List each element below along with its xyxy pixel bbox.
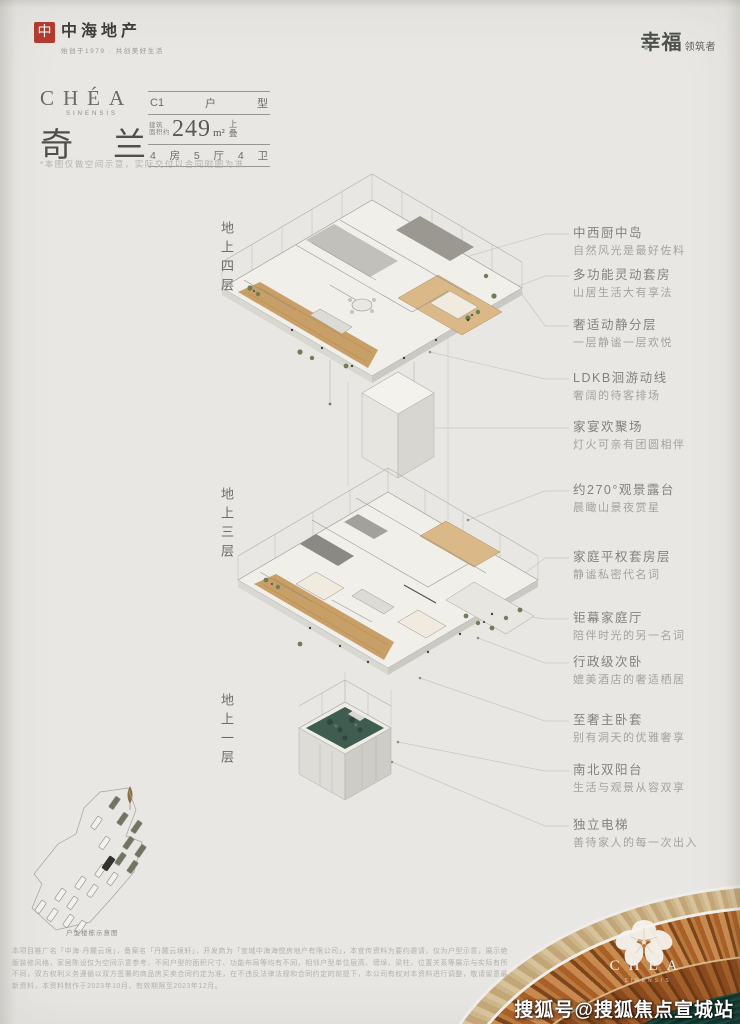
unit-area-value: 249 <box>172 117 211 141</box>
parcel-outline <box>32 788 142 930</box>
page-edge-shade-top <box>0 0 740 8</box>
highlighted-building <box>102 856 115 871</box>
annotation-zoning: 奢适动静分层 一层静谧一层欢悦 <box>573 318 733 350</box>
developer-logo: 中 中海地产 始创于1979 · 共创美好生活 <box>34 22 164 55</box>
floor-3-plan <box>238 468 538 675</box>
annotation-terrace: 约270°观景露台 晨瞰山景夜赏星 <box>573 483 733 515</box>
annotation-flex-suite: 多功能灵动套房 山居生活大有享法 <box>573 268 733 300</box>
plants <box>247 274 496 369</box>
campaign-logo-sub: 领筑者 <box>685 38 717 55</box>
unit-area-row: 建筑 面积约 249 m² 上 叠 <box>148 115 270 144</box>
annotation-suite-floor: 家庭平权套房层 静谧私密代名词 <box>573 550 733 582</box>
campaign-logo-main: 幸福 <box>641 26 683 55</box>
campaign-logo: 幸福 领筑者 <box>641 26 717 55</box>
unit-spec-box: C1 户 型 建筑 面积约 249 m² 上 叠 4房5厅4卫 <box>148 91 270 167</box>
footer-brand-sub: SINENSIS <box>600 978 696 984</box>
sohu-watermark: 搜狐号@搜狐焦点宣城站 <box>514 995 734 1022</box>
leader-lines <box>392 234 569 826</box>
poster-canvas: 中 中海地产 始创于1979 · 共创美好生活 幸福 领筑者 CHÉA SINE… <box>0 0 740 1024</box>
annotation-kitchen-island: 中西厨中岛 自然风光是最好佐料 <box>573 226 733 258</box>
annotation-balconies: 南北双阳台 生活与观景从容双享 <box>573 763 733 795</box>
footer-brand: CHÉA <box>592 958 704 975</box>
annotation-banquet: 家宴欢聚场 灯火可亲有团圆相伴 <box>573 420 733 452</box>
site-plan <box>12 780 182 935</box>
unit-model: C1 <box>150 97 164 109</box>
floor-label-1: 地上一层 <box>217 693 236 769</box>
floor-1-volume <box>299 680 391 800</box>
annotation-ldkb: LDKB洄游动线 奢阔的待客排场 <box>573 371 733 403</box>
unit-brand-en-sub: SINENSIS <box>44 111 140 117</box>
campaign-logo-dot-icon <box>644 46 648 50</box>
legal-disclaimer: 本项目推广名「中海·丹麓云境」，备案名「丹麓云境轩」，开发商为「宣城中海海悦房地… <box>12 946 508 992</box>
unit-area-unit: m² <box>213 127 225 141</box>
annotation-master-suite: 至奢主卧套 别有洞天的优雅奢享 <box>573 713 733 745</box>
elevator-shaft <box>362 372 434 478</box>
floor-4-plan <box>222 174 522 407</box>
unit-model-row: C1 户 型 <box>148 91 270 115</box>
building-footprints <box>35 816 119 934</box>
developer-logo-name: 中海地产 <box>61 22 164 42</box>
annotation-second-bedroom: 行政级次卧 媲美酒店的奢适栖居 <box>573 655 733 687</box>
annotation-family-hall: 钜幕家庭厅 陪伴时光的另一名词 <box>573 611 733 643</box>
site-plan-caption: 户型楼栋示意图 <box>66 927 119 937</box>
plan-disclaimer-note: *本图仅做空间示意，实际交付以合同附图为准 <box>40 158 245 170</box>
annotation-elevator: 独立电梯 善待家人的每一次出入 <box>573 818 733 850</box>
developer-logo-tagline: 始创于1979 · 共创美好生活 <box>61 45 164 55</box>
floor-label-4: 地上四层 <box>217 221 236 297</box>
leader-anchor-dots <box>391 259 526 764</box>
building-footprints-filled <box>109 796 147 874</box>
zhonghai-logo-mark-icon: 中 <box>34 22 55 43</box>
floor-label-3: 地上三层 <box>217 487 236 563</box>
unit-brand-en: CHÉA <box>40 86 133 111</box>
